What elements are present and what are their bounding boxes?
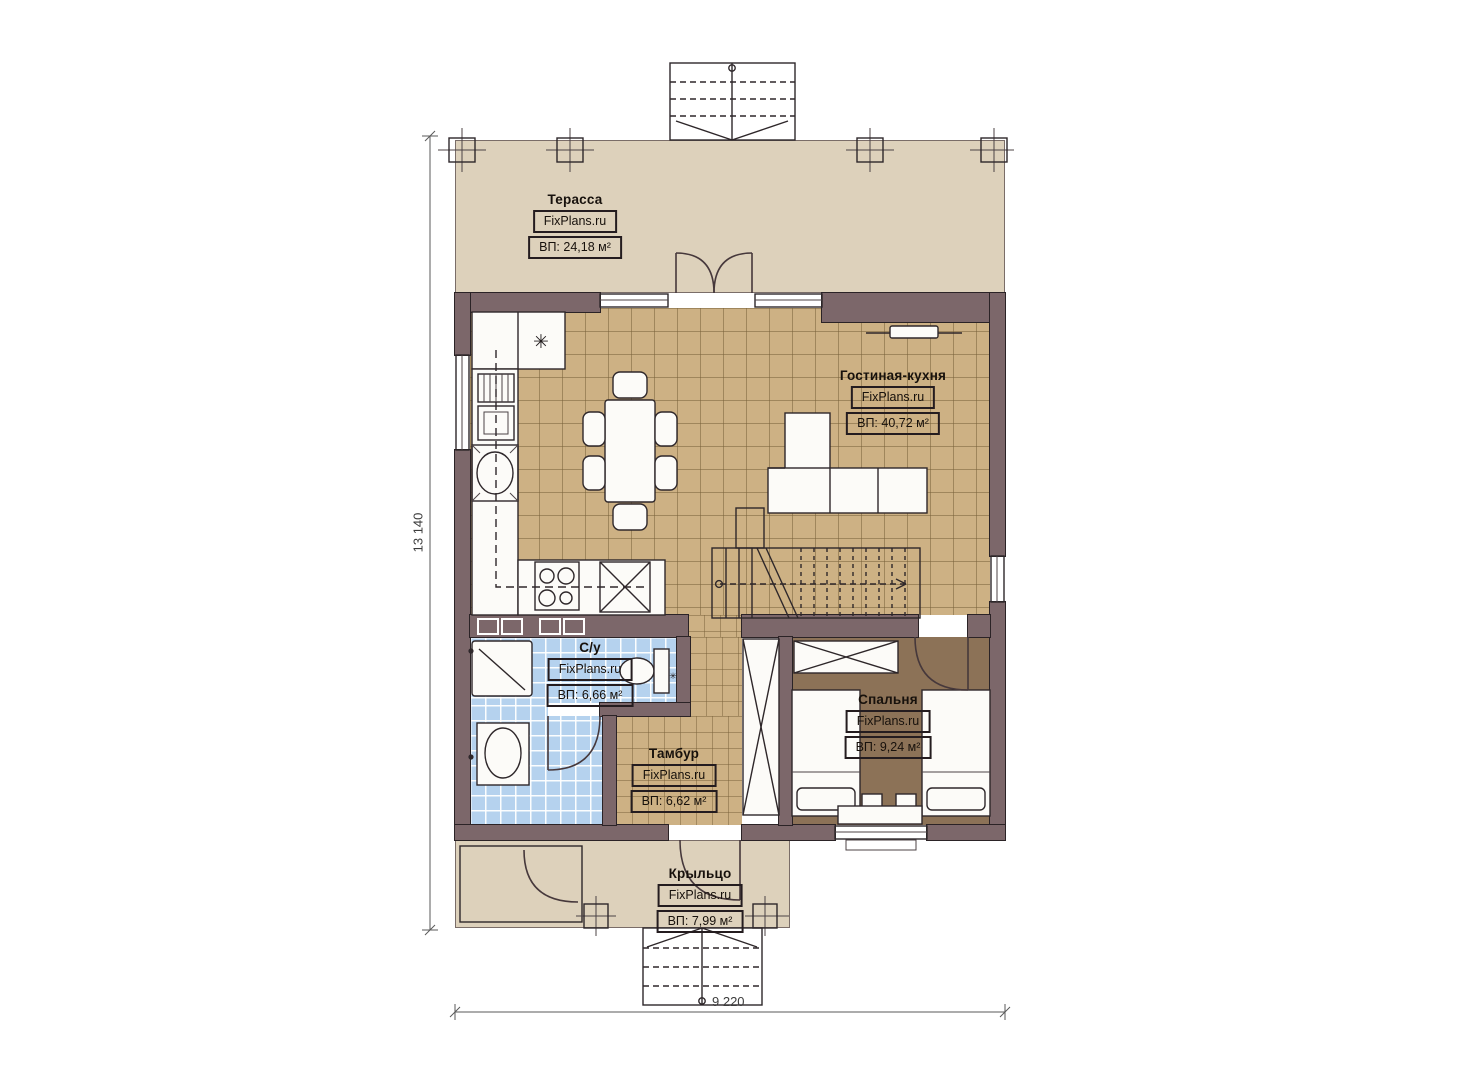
bedroom-door-threshold: [918, 615, 968, 637]
room-name: Терасса: [528, 192, 622, 207]
room-name: Спальня: [845, 692, 932, 707]
wall-right-lower: [990, 602, 1005, 840]
area-box: ВП: 24,18 м²: [528, 236, 622, 259]
brand-box: FixPlans.ru: [658, 884, 743, 907]
wall-right-upper: [990, 293, 1005, 556]
area-box: ВП: 9,24 м²: [845, 736, 932, 759]
wall-left-lower: [455, 450, 470, 840]
wall-partition-left: [470, 615, 688, 637]
brand-box: FixPlans.ru: [632, 764, 717, 787]
brand-box: FixPlans.ru: [533, 210, 618, 233]
wall-partition-right: [968, 615, 990, 637]
room-label-living-kitchen: Гостиная-кухня FixPlans.ru ВП: 40,72 м²: [840, 368, 946, 435]
room-label-porch: Крыльцо FixPlans.ru ВП: 7,99 м²: [657, 866, 744, 933]
brand-box: FixPlans.ru: [851, 386, 936, 409]
wall-top-left: [455, 293, 600, 312]
dimension-vertical: 13 140: [410, 513, 425, 553]
room-label-tambour: Тамбур FixPlans.ru ВП: 6,62 м²: [631, 746, 718, 813]
room-name: Тамбур: [631, 746, 718, 761]
window-top-left: [600, 294, 668, 307]
tambour-floor-upper: [690, 637, 742, 716]
room-name: Крыльцо: [657, 866, 744, 881]
wall-top-right: [822, 293, 1005, 322]
window-left: [456, 355, 469, 450]
wall-bath-east: [603, 716, 616, 825]
area-box: ВП: 6,62 м²: [631, 790, 718, 813]
window-top-right: [755, 294, 822, 307]
room-name: Гостиная-кухня: [840, 368, 946, 383]
hall-closet: [743, 639, 779, 815]
wall-bottom-mid: [742, 825, 835, 840]
floor-plan: ✳: [0, 0, 1473, 1080]
wall-left-upper: [455, 293, 470, 355]
wall-closet-bedroom: [779, 637, 792, 825]
window-bedroom: [835, 826, 927, 850]
tambour-threshold: [688, 615, 742, 637]
wall-bath-tambour: [677, 637, 690, 703]
room-label-bedroom: Спальня FixPlans.ru ВП: 9,24 м²: [845, 692, 932, 759]
room-name: С/у: [547, 640, 634, 655]
room-label-terrace: Терасса FixPlans.ru ВП: 24,18 м²: [528, 192, 622, 259]
wall-bottom-right: [927, 825, 1005, 840]
room-label-bathroom: С/у FixPlans.ru ВП: 6,66 м²: [547, 640, 634, 707]
exterior-stairs-top-icon: [670, 63, 795, 140]
bathroom-floor-lower: [470, 705, 603, 825]
area-box: ВП: 40,72 м²: [846, 412, 940, 435]
area-box: ВП: 6,66 м²: [547, 684, 634, 707]
brand-box: FixPlans.ru: [548, 658, 633, 681]
dimension-horizontal: 9 220: [712, 994, 745, 1009]
wall-bottom-left: [455, 825, 668, 840]
area-box: ВП: 7,99 м²: [657, 910, 744, 933]
living-kitchen-floor: [470, 308, 990, 615]
wall-partition-stairs: [742, 615, 918, 637]
window-right: [991, 556, 1004, 602]
brand-box: FixPlans.ru: [846, 710, 931, 733]
